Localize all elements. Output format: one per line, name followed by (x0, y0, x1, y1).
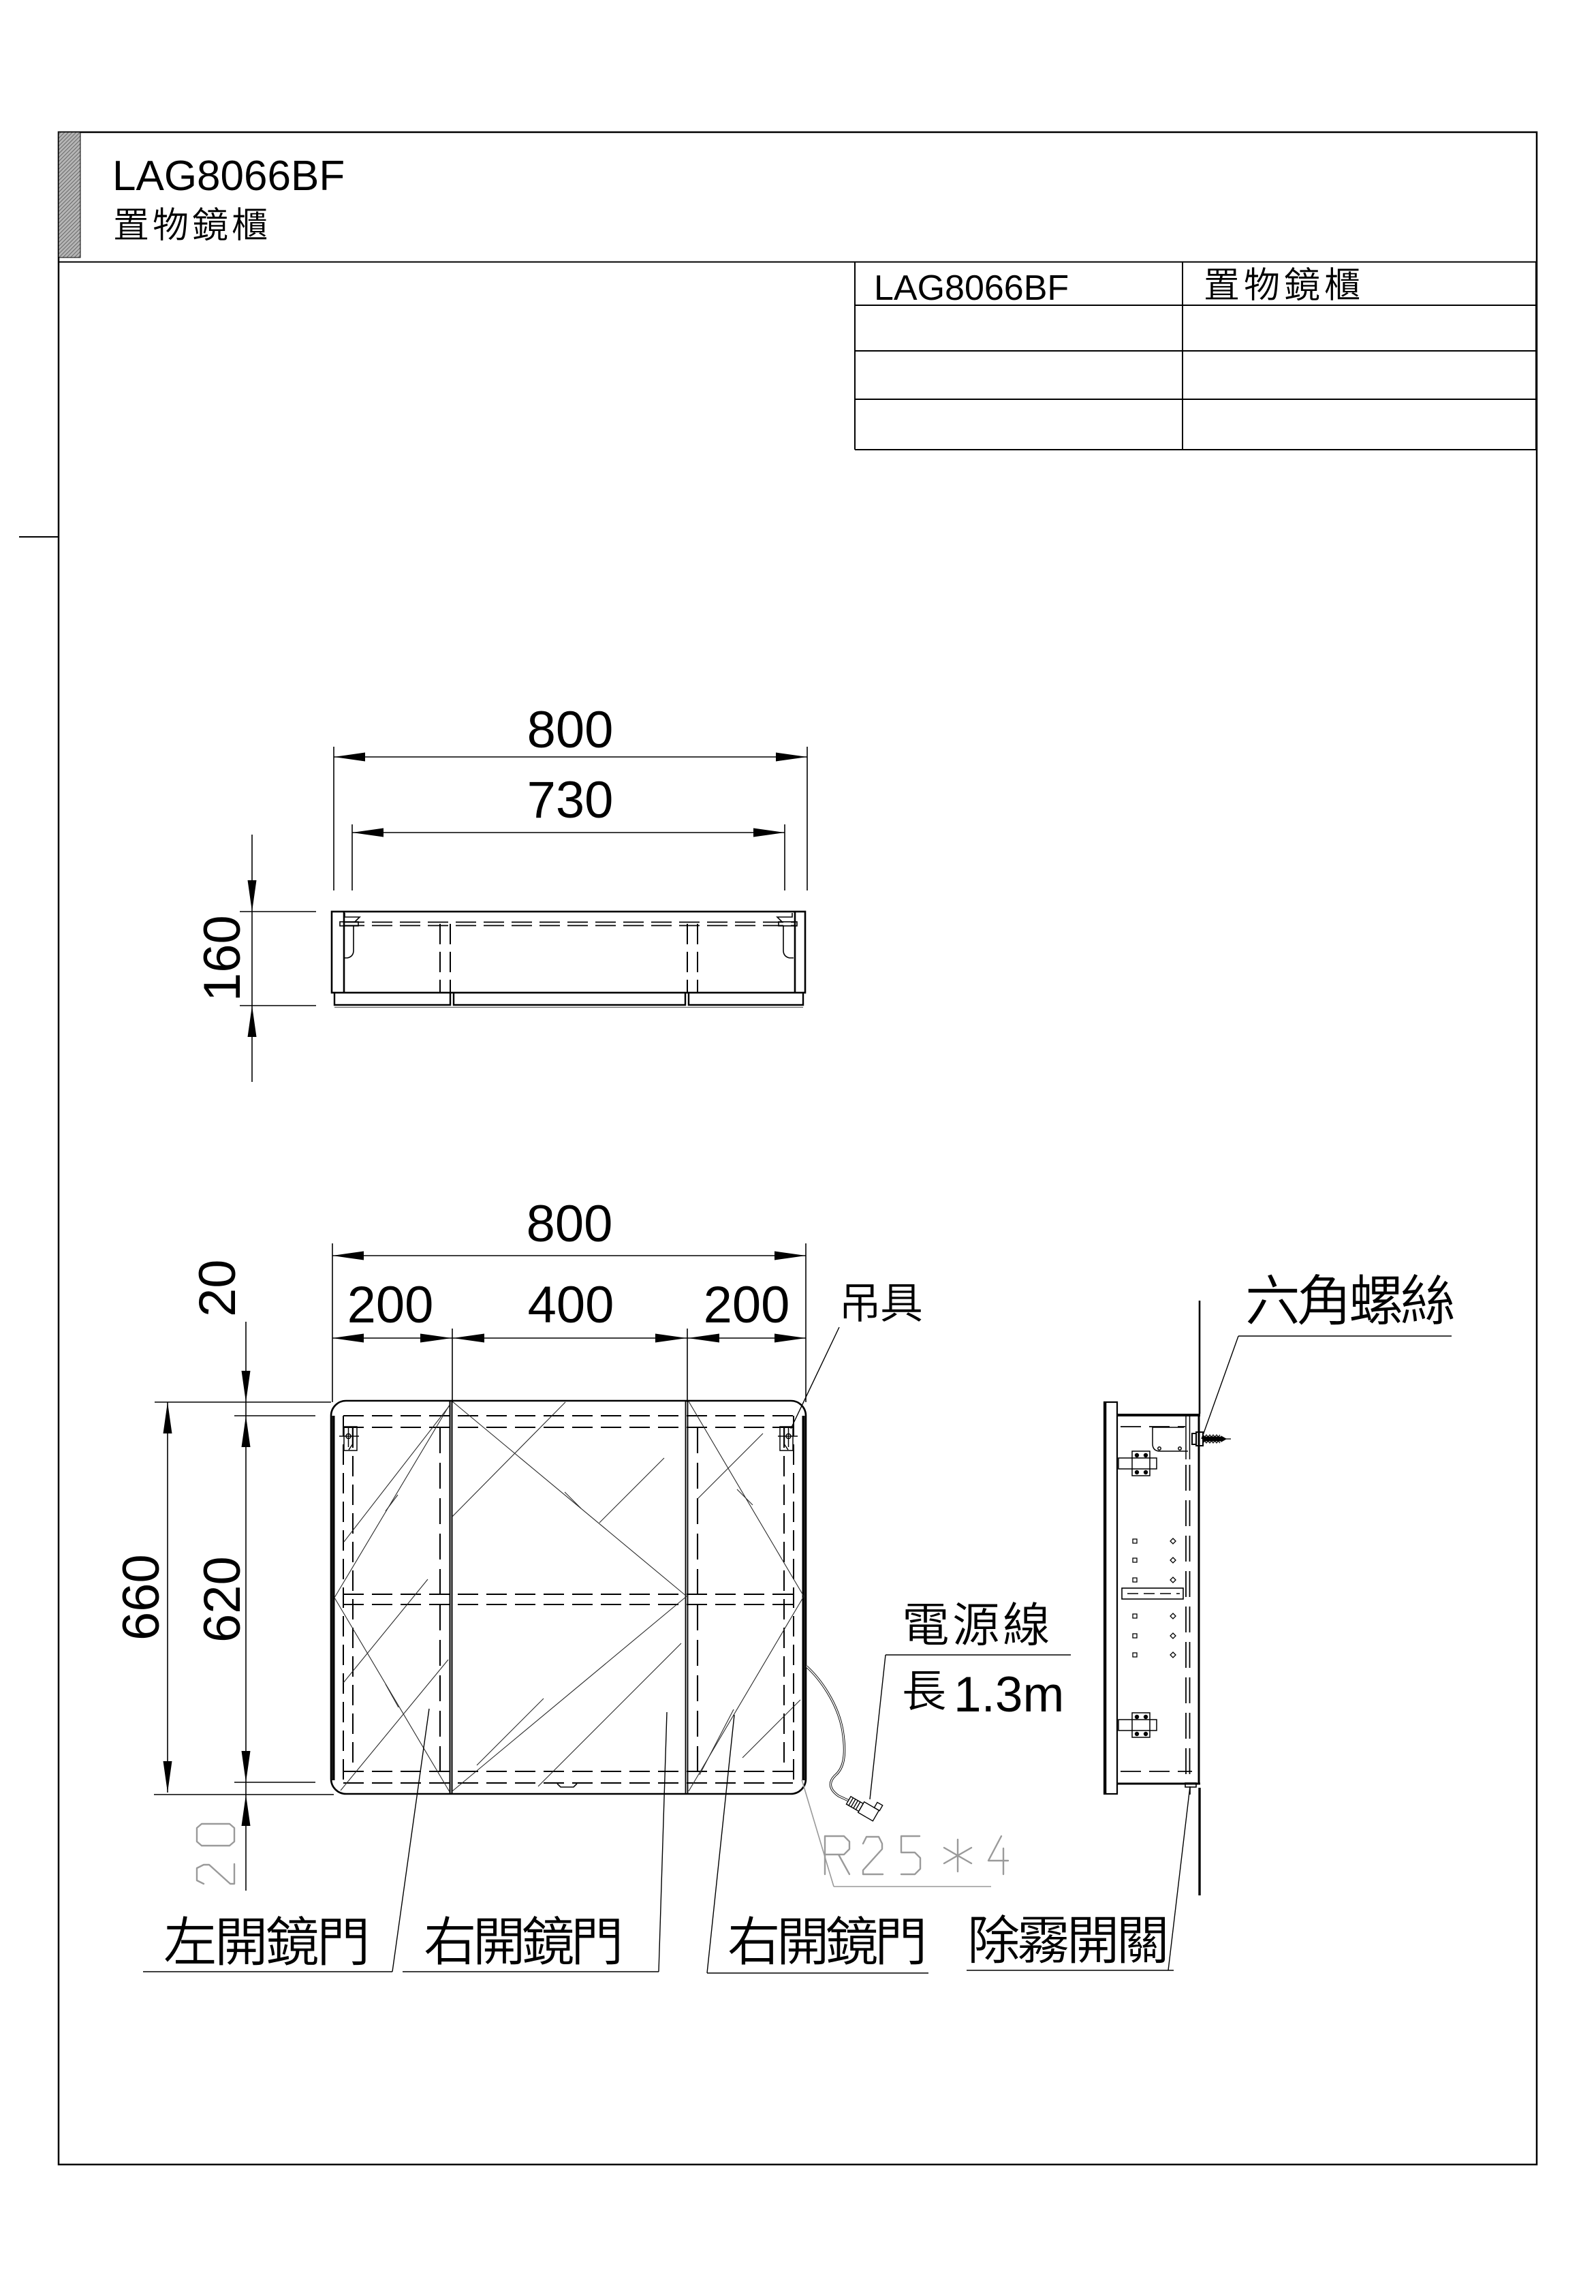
svg-text:200: 200 (347, 1276, 434, 1334)
svg-text:20: 20 (189, 1259, 247, 1317)
svg-text:200: 200 (704, 1276, 790, 1334)
svg-text:160: 160 (193, 915, 251, 1002)
svg-text:800: 800 (527, 701, 614, 759)
svg-text:LAG8066BF: LAG8066BF (874, 268, 1069, 308)
svg-text:400: 400 (528, 1276, 614, 1334)
svg-text:LAG8066BF: LAG8066BF (112, 153, 345, 200)
svg-text:620: 620 (193, 1556, 251, 1643)
svg-text:730: 730 (527, 771, 614, 829)
svg-text:660: 660 (112, 1554, 170, 1641)
svg-text:1.3m: 1.3m (954, 1667, 1064, 1722)
svg-text:800: 800 (527, 1195, 613, 1253)
